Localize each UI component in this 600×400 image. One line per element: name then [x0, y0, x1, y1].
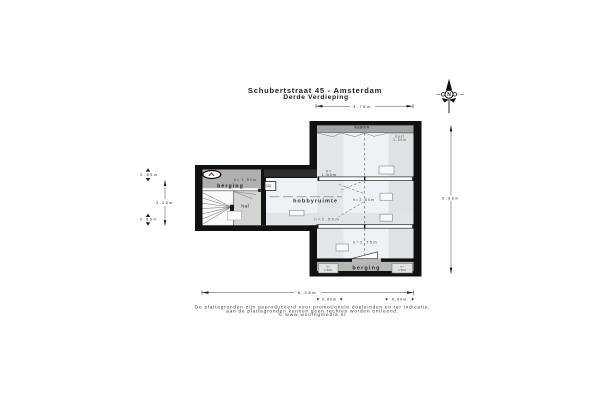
- svg-text:0.80m: 0.80m: [322, 298, 337, 302]
- svg-text:8.28m: 8.28m: [298, 290, 318, 295]
- svg-text:h< 1.50m: h< 1.50m: [234, 178, 257, 182]
- svg-text:0.85m: 0.85m: [140, 173, 158, 177]
- svg-text:berging: berging: [217, 184, 244, 190]
- svg-text:1.50m: 1.50m: [393, 138, 407, 142]
- svg-text:0.85m: 0.85m: [140, 218, 158, 222]
- svg-text:3.78m: 3.78m: [353, 104, 372, 109]
- svg-text:1.50m: 1.50m: [398, 268, 407, 272]
- svg-text:5.88m: 5.88m: [442, 197, 460, 201]
- svg-text:Derde Verdieping: Derde Verdieping: [283, 94, 349, 101]
- svg-text:N: N: [447, 92, 451, 98]
- svg-text:berging: berging: [352, 266, 380, 272]
- svg-text:h=1.50m: h=1.50m: [314, 217, 340, 221]
- svg-text:1.50m: 1.50m: [322, 172, 337, 177]
- svg-text:hobbyruimte: hobbyruimte: [293, 199, 338, 205]
- svg-text:3.08m: 3.08m: [156, 201, 174, 205]
- svg-text:0.80m: 0.80m: [392, 298, 407, 302]
- svg-text:h=2.75m: h=2.75m: [353, 241, 378, 245]
- svg-text:kasten: kasten: [354, 125, 369, 130]
- svg-text:1.50m: 1.50m: [324, 268, 333, 272]
- svg-text:h=2.54m: h=2.54m: [353, 198, 376, 202]
- svg-text:© www.woningmedia.nl: © www.woningmedia.nl: [279, 311, 347, 318]
- svg-text:hal: hal: [241, 203, 249, 209]
